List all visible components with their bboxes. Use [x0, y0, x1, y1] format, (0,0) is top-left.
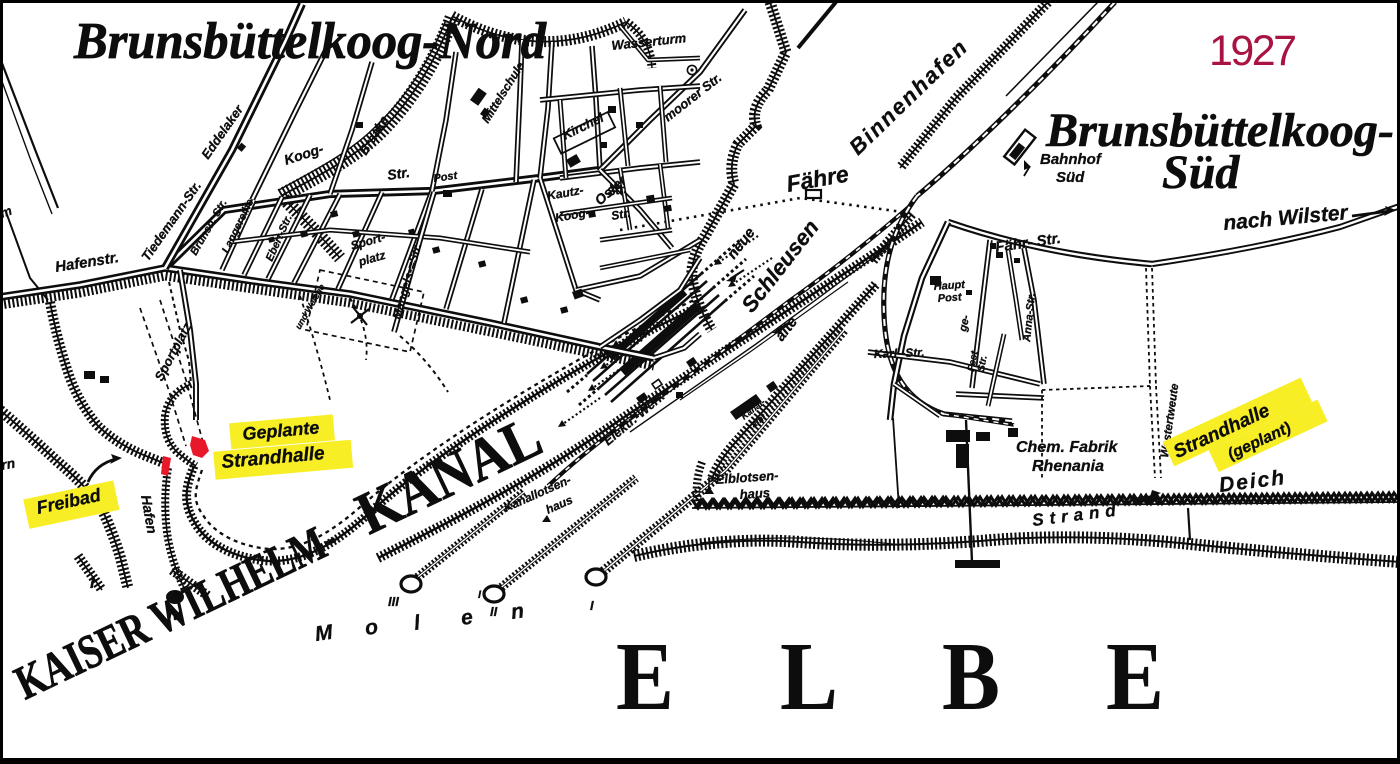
svg-text:Post: Post: [937, 291, 963, 305]
svg-text:L: L: [780, 623, 838, 730]
svg-text:Süd: Süd: [1056, 169, 1085, 186]
svg-text:Str.: Str.: [386, 164, 411, 183]
svg-text:IV: IV: [168, 608, 182, 623]
svg-text:Brunsbüttelkoog-Nord: Brunsbüttelkoog-Nord: [73, 13, 547, 70]
svg-text:II: II: [490, 604, 498, 619]
svg-text:E: E: [616, 623, 674, 730]
svg-text:E: E: [1106, 623, 1164, 730]
svg-text:B: B: [942, 623, 1000, 730]
svg-text:1927: 1927: [1209, 27, 1297, 75]
svg-text:Süd: Süd: [1162, 146, 1240, 199]
svg-text:I: I: [90, 575, 95, 592]
svg-text:Karl--Str.: Karl--Str.: [874, 345, 925, 361]
svg-text:haus: haus: [739, 485, 770, 502]
svg-text:Rhenania: Rhenania: [1032, 458, 1104, 475]
svg-text:Chem. Fabrik: Chem. Fabrik: [1016, 439, 1118, 456]
svg-text:Haupt: Haupt: [933, 279, 966, 293]
svg-text:III: III: [388, 594, 399, 609]
svg-text:I: I: [590, 598, 594, 613]
svg-text:Bahnhof: Bahnhof: [1040, 151, 1103, 168]
